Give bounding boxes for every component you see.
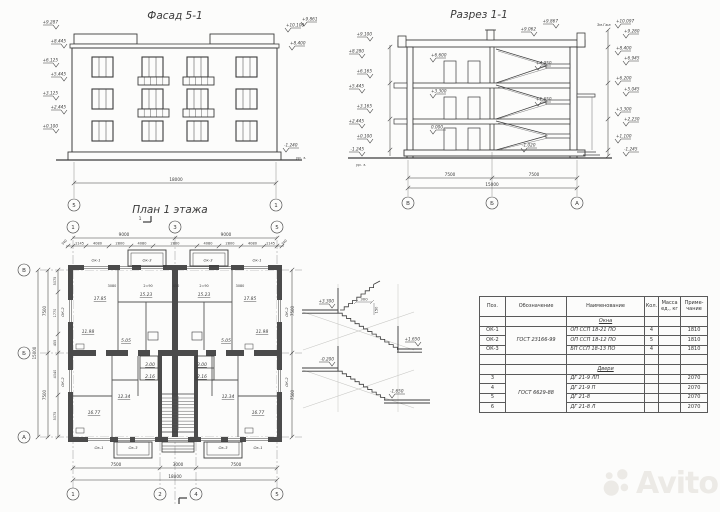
window-tag: ОК-2 [60, 307, 65, 317]
room-area-label: 2.16 [197, 374, 207, 380]
drawing-line [496, 66, 546, 83]
spec-cell-pos: ОК-2 [480, 336, 506, 346]
facade-window [187, 57, 208, 77]
dim-label: 7500 [445, 172, 456, 177]
axis-label: А [22, 435, 26, 441]
axis-label: 1 [274, 203, 278, 209]
elevation-mark-icon [430, 94, 446, 98]
dim-label: 5075 [53, 277, 57, 286]
axis-label: А [575, 201, 579, 207]
section-title: Разрез 1-1 [450, 9, 508, 21]
elevation-mark-icon [623, 122, 639, 126]
elevation-mark-icon [615, 139, 631, 143]
drawing-line [498, 123, 548, 136]
elevation-mark-icon [285, 28, 301, 32]
dim-label: 7500 [42, 389, 47, 400]
elevation-mark-icon [357, 37, 373, 41]
axis-label: Б [22, 351, 26, 357]
window-opening [68, 300, 73, 322]
axis-label: 5 [72, 203, 76, 209]
avito-logo-icon [594, 461, 634, 507]
window-opening [168, 437, 188, 442]
elevation-mark-icon [283, 148, 299, 152]
elevation-label: +1.100 [616, 134, 632, 139]
canopy [577, 94, 595, 97]
plan-title: План 1 этажа [132, 204, 207, 216]
axis-label: В [406, 201, 410, 207]
elevation-mark-icon [357, 139, 373, 143]
elevation-mark-icon [43, 96, 59, 100]
elevation-mark-icon [51, 110, 67, 114]
stair-flight [338, 313, 398, 350]
facade-balcony [138, 109, 169, 117]
elevation-mark-icon [389, 394, 405, 398]
elevation-mark-icon [623, 34, 639, 38]
facade-window [236, 57, 257, 77]
spec-cell-pos: 6 [480, 403, 506, 413]
elevation-label: +3.300 [616, 107, 632, 112]
spec-cell-mass [659, 403, 681, 413]
floor-slab [413, 119, 570, 124]
window-tag: Ок-1 [253, 445, 262, 450]
elevation-label: -1.245 [351, 147, 365, 152]
facade-window [187, 121, 208, 141]
balcony-slab [394, 119, 407, 124]
spec-cell [480, 355, 506, 365]
dim-label: 3000 [173, 462, 184, 467]
elevation-label: -1.245 [624, 147, 638, 152]
spec-cell-name: ДГ 21-9 ЛП [567, 374, 644, 384]
dim-label: 4080 [93, 241, 102, 245]
room-area-label: 17.85 [94, 296, 107, 302]
spec-cell [681, 364, 708, 374]
spec-cell-note: 2070 [681, 393, 708, 403]
spec-table: Поз. Обозначение Наименование Кол. Масса… [479, 296, 708, 413]
window-tag: Ок-1 [94, 445, 103, 450]
elevation-mark-icon [615, 24, 631, 28]
fixture [245, 428, 253, 433]
elevation-mark-icon [615, 112, 631, 116]
elevation-label: +6.200 [616, 76, 632, 81]
drawing-canvas: Фасад 5-1+9.287+8.445+6.125+5.445+3.125+… [0, 0, 720, 512]
elevation-label: -0.200 [321, 357, 335, 362]
floor-slab [413, 83, 570, 88]
facade-window [92, 89, 113, 109]
elevation-label: +2.230 [624, 117, 640, 122]
facade-window [236, 89, 257, 109]
room-area-label: 11.98 [82, 329, 95, 335]
dim-label: 450 [173, 284, 179, 288]
dim-label: 150 [375, 306, 379, 314]
dim-label: 9000 [221, 232, 232, 237]
avito-watermark-text: Avito [636, 469, 718, 499]
avito-watermark: Avito [594, 460, 718, 508]
section-door [444, 128, 456, 150]
window-opening [277, 370, 282, 392]
spec-cell-note: 2070 [681, 384, 708, 394]
spec-cell [659, 364, 681, 374]
window-tag: ОК-2 [284, 377, 289, 387]
drawing-line [498, 104, 548, 119]
plan-party-wall [172, 270, 178, 350]
elevation-label: +2.445 [51, 105, 67, 110]
facade-window [142, 89, 163, 109]
spec-cell-qty: 4 [644, 345, 658, 355]
elevation-label: +9.867 [543, 19, 559, 24]
elevation-mark-icon [623, 152, 639, 156]
elevation-label: +9.062 [521, 27, 537, 32]
section-door [468, 61, 480, 83]
spec-cell-note: 1810 [681, 326, 708, 336]
section-drawing: Разрез 1-1Зм.Гжа+9.867+9.062+9.100+8.280… [348, 9, 640, 209]
window-tag: Ок-3 [218, 445, 228, 450]
spec-cell-pos: ОК-3 [480, 345, 506, 355]
dim-label: 2=90 [143, 284, 152, 288]
elevation-label: +8.400 [616, 46, 632, 51]
fixture [76, 344, 84, 349]
room-area-label: 11.98 [256, 329, 269, 335]
room-area-label: 5.05 [121, 338, 131, 344]
elevation-label: +9.100 [357, 32, 373, 37]
axis-label: 5 [275, 492, 279, 498]
section-door [468, 128, 480, 150]
room-area-label: 12.34 [222, 394, 235, 400]
section-wall-right [570, 47, 577, 158]
facade-title: Фасад 5-1 [147, 10, 202, 22]
window-tag: Ок-3 [128, 445, 138, 450]
spec-col-qty: Кол. [644, 297, 658, 317]
room-area-label: 3.00 [145, 362, 155, 368]
floor-plan-drawing: План 1 этажа1900090001145408028004080280… [18, 204, 302, 505]
chimney [487, 30, 494, 40]
dim-label: 4080 [204, 241, 213, 245]
window-opening [68, 370, 73, 392]
spec-group-windows: Окна [567, 317, 644, 327]
spec-cell-pos: 3 [480, 374, 506, 384]
spec-cell-pos: 5 [480, 393, 506, 403]
facade-window [142, 121, 163, 141]
dim-label: 340 [281, 239, 288, 246]
spec-cell-pos: ОК-1 [480, 326, 506, 336]
elevation-mark-icon [349, 124, 365, 128]
dim-label: 7500 [42, 305, 47, 316]
elevation-mark-icon [623, 61, 639, 65]
facade-window [92, 121, 113, 141]
spec-cell-note: 2070 [681, 374, 708, 384]
elevation-label: +9.861 [302, 17, 318, 22]
ground-slab [404, 150, 585, 156]
window-opening [228, 437, 240, 442]
elevation-label: +2.445 [349, 119, 365, 124]
spec-cell-pos: 4 [480, 384, 506, 394]
elevation-label: +8.280 [349, 49, 365, 54]
facade-window [187, 89, 208, 109]
spec-cell-mass [659, 374, 681, 384]
facade-plinth [68, 152, 281, 160]
elevation-mark-icon [430, 58, 446, 62]
dim-label: 2800 [116, 241, 125, 245]
roof-note: Зм.Гжа [597, 23, 611, 27]
dim-label: 3080 [236, 284, 245, 288]
stair-landing [546, 134, 570, 138]
drawing-rect [74, 34, 137, 44]
facade-balcony [183, 109, 214, 117]
window-tag: ОК-2 [60, 377, 65, 387]
spec-cell [505, 355, 567, 365]
elevation-label: +3.165 [357, 104, 373, 109]
dim-label: 1770 [53, 309, 57, 318]
spec-cell [681, 317, 708, 327]
stair-wall [158, 356, 162, 442]
dim-label: 15000 [485, 182, 499, 187]
dim-label: 7500 [231, 462, 242, 467]
elevation-label: +5.445 [349, 84, 365, 89]
spec-spacer-row [480, 355, 708, 365]
elevation-label: +10.097 [616, 19, 634, 24]
spec-cell [480, 364, 506, 374]
axis-label: 1 [71, 492, 75, 498]
elevation-label: +1.650 [405, 337, 421, 342]
room-area-label: 16.77 [252, 410, 265, 416]
elevation-mark-icon [615, 81, 631, 85]
elevation-label: +9.280 [624, 29, 640, 34]
facade-drawing: Фасад 5-1+9.287+8.445+6.125+5.445+3.125+… [43, 10, 318, 211]
window-opening [88, 437, 110, 442]
window-tag: Ок-3 [142, 258, 152, 263]
dim-label: 3080 [108, 284, 117, 288]
door-opening [198, 350, 206, 356]
elevation-mark-icon [289, 46, 305, 50]
elevation-label: +1.650 [536, 97, 552, 102]
dim-label: 1145 [75, 241, 84, 245]
room-area-label: 5.05 [221, 338, 231, 344]
axis-label: 1 [71, 225, 75, 231]
elevation-mark-icon [349, 152, 365, 156]
spec-cell-name: ОП ССП 18-12 ПО [567, 336, 644, 346]
door-opening [128, 350, 138, 356]
elevation-label: 0.000 [431, 125, 443, 130]
spec-cell-mass [659, 336, 681, 346]
dim-label: 300 [360, 297, 368, 302]
room-area-label: 15.23 [198, 292, 211, 298]
spec-cell-name: БП ССП 18-13 ПО [567, 345, 644, 355]
spec-cell-note: 1810 [681, 336, 708, 346]
spec-cell-note: 1810 [681, 345, 708, 355]
elevation-mark-icon [405, 342, 421, 346]
blueprint-page: Фасад 5-1+9.287+8.445+6.125+5.445+3.125+… [0, 0, 720, 512]
spec-group-row: Окна [480, 317, 708, 327]
elevation-mark-icon [623, 92, 639, 96]
elevation-mark-icon [349, 89, 365, 93]
balcony-slab [394, 83, 407, 88]
closet [148, 332, 158, 340]
door-opening [96, 350, 106, 356]
spec-cell-note: 2070 [681, 403, 708, 413]
spec-col-pos: Поз. [480, 297, 506, 317]
spec-cell-mass [659, 326, 681, 336]
section-wall-left [407, 47, 413, 158]
axis-label: В [22, 268, 26, 274]
dim-label: 7500 [290, 389, 295, 400]
spec-cell [567, 355, 644, 365]
elevation-mark-icon [349, 54, 365, 58]
section-wall-mid [490, 47, 494, 150]
spec-cell [644, 355, 658, 365]
door-opening [244, 350, 254, 356]
axis-label: 5 [275, 225, 279, 231]
spec-cell-mass [659, 384, 681, 394]
spec-cell [659, 355, 681, 365]
elevation-mark-icon [43, 25, 59, 29]
dim-label: 1145 [266, 241, 275, 245]
spec-cell [644, 364, 658, 374]
window-opening [135, 437, 155, 442]
spec-col-note: Приме- чание [681, 297, 708, 317]
dim-label: 18000 [169, 177, 183, 182]
axis-label: Б [490, 201, 494, 207]
spec-row: ОК-1 ГОСТ 23166-99 ОП ССП 18-21 ПО 4 181… [480, 326, 708, 336]
dim-label: 2800 [171, 241, 180, 245]
window-tag: Ок-3 [203, 258, 213, 263]
facade-window [92, 57, 113, 77]
elevation-mark-icon [51, 77, 67, 81]
spec-cell [644, 317, 658, 327]
window-tag: ОК-2 [284, 307, 289, 317]
spec-cell-mass [659, 345, 681, 355]
elevation-mark-icon [357, 109, 373, 113]
dim-label: 9000 [119, 232, 130, 237]
spec-cell [659, 317, 681, 327]
door-opening [216, 350, 226, 356]
elevation-label: +6.600 [431, 53, 447, 58]
spec-col-mass: Масса ед., кг [659, 297, 681, 317]
dim-label: 4040 [53, 370, 57, 379]
elevation-label: -1.240 [284, 143, 298, 148]
ground-level-label: ур. з. [295, 155, 306, 160]
entrance-porch [162, 442, 194, 452]
dim-label: 7500 [290, 305, 295, 316]
elevation-mark-icon [521, 32, 537, 36]
spec-cell-qty [644, 374, 658, 384]
dim-label: 2800 [226, 241, 235, 245]
section-door [444, 97, 456, 119]
ground-level-label: ур. з. [355, 162, 366, 167]
dim-label: 4080 [248, 241, 257, 245]
window-tag: Ок-1 [252, 258, 261, 263]
elevation-mark-icon [319, 304, 335, 308]
window-opening [246, 437, 268, 442]
stair-flight [340, 284, 374, 310]
elevation-mark-icon [43, 63, 59, 67]
spec-group-row: Двери [480, 364, 708, 374]
spec-cell-name: ОП ССП 18-21 ПО [567, 326, 644, 336]
room-area-label: 16.77 [88, 410, 101, 416]
spec-cell-gost: ГОСТ 23166-99 [505, 326, 567, 355]
dim-label: 7500 [111, 462, 122, 467]
drawing-line [498, 68, 548, 83]
dim-label: 340 [61, 239, 68, 246]
facade-window [142, 57, 163, 77]
elevation-mark-icon [51, 44, 67, 48]
window-opening [84, 265, 108, 270]
facade-balcony [138, 77, 169, 85]
spec-cell-name: ДГ 21-8 Л [567, 403, 644, 413]
spec-cell [505, 364, 567, 374]
dim-label: 15000 [32, 346, 37, 359]
axis-label: 3 [173, 225, 177, 231]
elevation-label: +9.287 [43, 20, 59, 25]
fixture [245, 344, 253, 349]
elevation-label: +6.125 [43, 58, 59, 63]
room-area-label: 3.00 [197, 362, 207, 368]
spec-col-name: Наименование [567, 297, 644, 317]
elevation-label: +8.445 [51, 39, 67, 44]
spec-cell-name: ДГ 21-8 [567, 393, 644, 403]
cut-label: 1 [139, 216, 142, 222]
fixture [76, 428, 84, 433]
spec-cell-qty [644, 393, 658, 403]
elevation-label: +0.100 [357, 134, 373, 139]
window-opening [201, 437, 221, 442]
room-area-label: 17.85 [244, 296, 257, 302]
plan-party-wall [172, 356, 178, 442]
facade-balcony [183, 77, 214, 85]
spec-cell-qty [644, 384, 658, 394]
closet [192, 332, 202, 340]
spec-cell-gost: ГОСТ 6629-88 [505, 374, 567, 412]
stair-detail-drawing: 300150+3.300+1.650-0.200-1.650 [302, 281, 430, 412]
elevation-label: +5.045 [624, 87, 640, 92]
roof-slab [398, 40, 585, 47]
elevation-mark-icon [357, 74, 373, 78]
dim-label: 455 [53, 340, 57, 346]
elevation-label: +3.125 [43, 91, 59, 96]
drawing-rect [577, 33, 585, 47]
dim-label: 2=90 [199, 284, 208, 288]
drawing-line [374, 281, 380, 284]
elevation-mark-icon [430, 130, 446, 134]
drawing-line [496, 102, 546, 119]
elevation-label: +5.445 [51, 72, 67, 77]
spec-cell [681, 355, 708, 365]
elevation-label: -1.650 [390, 389, 404, 394]
window-opening [244, 265, 268, 270]
drawing-line [496, 136, 546, 150]
window-opening [118, 437, 130, 442]
door-opening [150, 350, 158, 356]
elevation-mark-icon [319, 362, 335, 366]
spec-col-designation: Обозначение [505, 297, 567, 317]
section-door [444, 61, 456, 83]
elevation-label: +3.300 [319, 299, 335, 304]
dim-label: 18000 [168, 474, 182, 479]
elevation-label: +0.100 [43, 124, 59, 129]
elevation-label: +6.165 [357, 69, 373, 74]
spec-header-row: Поз. Обозначение Наименование Кол. Масса… [480, 297, 708, 317]
drawing-rect [398, 36, 406, 47]
drawing-rect [210, 34, 274, 44]
room-area-label: 12.34 [118, 394, 131, 400]
elevation-label: +4.950 [536, 61, 552, 66]
elevation-label: -1.020 [522, 143, 536, 148]
spec-cell-qty: 4 [644, 326, 658, 336]
axis-label: 4 [194, 492, 198, 498]
drawing-rect [70, 44, 279, 48]
elevation-mark-icon [43, 129, 59, 133]
spec-row: 3 ГОСТ 6629-88 ДГ 21-9 ЛП 2070 [480, 374, 708, 384]
window-tag: Ок-1 [91, 258, 100, 263]
dim-label: 5075 [53, 412, 57, 421]
